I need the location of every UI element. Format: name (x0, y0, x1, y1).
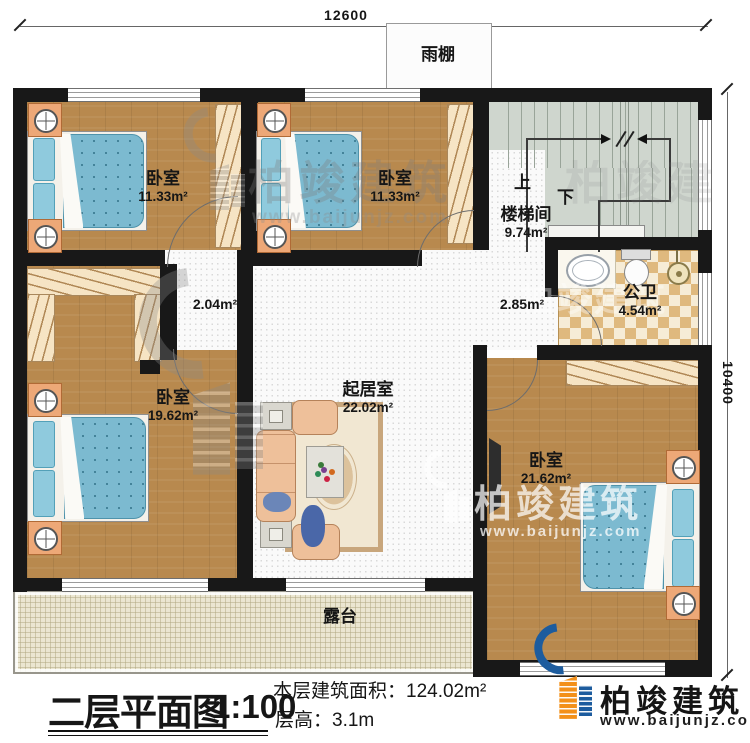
room-name: 公卫 (619, 284, 662, 301)
bed-pillow (33, 470, 55, 517)
nightstand (28, 383, 62, 417)
armchair-north (292, 400, 338, 435)
logo-building-icon (235, 402, 263, 469)
person-figure (301, 505, 325, 547)
label-stairwell: 楼梯间 9.74m² (501, 206, 552, 240)
end-table (260, 402, 292, 430)
lamp-icon (672, 456, 696, 480)
room-area: 19.62m² (148, 409, 198, 423)
right-dimension-label: 10400 (720, 359, 736, 407)
room-name: 露台 (323, 608, 357, 625)
window-bedroom-left (62, 578, 208, 592)
bed-pillow (33, 421, 55, 468)
bed-left (27, 414, 149, 522)
floor-plan-page: 12600 10400 雨棚 (0, 0, 750, 743)
watermark-url-white: www.baijunjz.com (480, 524, 641, 539)
logo-building-icon (193, 382, 231, 474)
terrace-floor (13, 590, 477, 674)
wall-outer-left (13, 88, 27, 592)
lamp-icon (34, 109, 58, 133)
label-hall-east-area: 2.85m² (500, 296, 544, 312)
window-bedroom-top-left (68, 88, 200, 102)
stair-down-label: 下 (557, 183, 574, 208)
stair-arrow-left-icon (637, 134, 647, 144)
floor-height-note: 层高：3.1m (275, 705, 374, 732)
lamp-icon (34, 389, 58, 413)
stair-up-label: 上 (514, 168, 531, 193)
top-dimension-tick-left (14, 19, 27, 32)
bed-pillow (33, 138, 55, 181)
nightstand (257, 103, 291, 137)
lamp-icon (672, 592, 696, 616)
lamp-icon (263, 109, 287, 133)
top-dimension-tick-right (700, 19, 713, 32)
toilet-bowl-icon (624, 259, 649, 286)
nightstand (28, 219, 62, 253)
window-living-room (286, 578, 425, 592)
room-name: 卧室 (521, 452, 571, 469)
room-area: 9.74m² (501, 226, 552, 240)
logo-building-icon (231, 174, 245, 208)
logo-building-icon (579, 685, 592, 716)
logo-building-icon (210, 164, 229, 210)
label-hall-west-area: 2.04m² (193, 296, 237, 312)
wardrobe-bedroom-right (566, 360, 700, 386)
room-name: 卧室 (148, 389, 198, 406)
top-dimension-line (20, 26, 708, 27)
room-area: 21.62m² (521, 472, 571, 486)
room-name: 卧室 (370, 170, 420, 187)
title-underline-2 (48, 735, 268, 736)
nightstand (666, 586, 700, 620)
nightstand (28, 521, 62, 555)
room-area: 22.02m² (343, 401, 394, 415)
label-bedroom-top-mid: 卧室 11.33m² (370, 170, 420, 204)
coffee-table (306, 446, 344, 498)
bed-pillow (672, 539, 694, 586)
canopy-label: 雨棚 (421, 46, 455, 63)
walkin-closet-top (27, 268, 162, 296)
wall-bedroom-right-north (537, 345, 698, 360)
shower-head-icon (667, 262, 690, 285)
nightstand (28, 103, 62, 137)
label-living-room: 起居室 22.02m² (343, 381, 394, 415)
room-name: 楼梯间 (501, 206, 552, 223)
label-bedroom-left: 卧室 19.62m² (148, 389, 198, 423)
plan-title: 二层平面图 (48, 682, 228, 736)
room-area: 11.33m² (138, 190, 188, 204)
label-bedroom-right: 卧室 21.62m² (521, 452, 571, 486)
logo-building-icon (444, 490, 458, 523)
floor-area-note: 本层建筑面积：124.02m² (273, 676, 486, 703)
watermark-text: 柏竣建筑 (248, 160, 452, 206)
flower-vase-icon (321, 467, 327, 473)
brand-url: www.baijunjz.com (600, 712, 750, 729)
wall-stair-west (473, 88, 489, 250)
nightstand (666, 450, 700, 484)
stair-down-path-h1 (647, 138, 671, 140)
logo-building-icon (559, 676, 577, 719)
room-name: 起居室 (343, 381, 394, 398)
label-terrace: 露台 (323, 608, 357, 625)
label-bedroom-top-left: 卧室 11.33m² (138, 170, 188, 204)
room-name: 卧室 (138, 170, 188, 187)
room-area: 11.33m² (370, 190, 420, 204)
bed-top-left (27, 131, 147, 231)
lamp-icon (263, 225, 287, 249)
lamp-icon (34, 527, 58, 551)
end-table (260, 520, 292, 548)
title-underline-1 (48, 730, 268, 732)
watermark-text-white: 柏竣建筑 (474, 486, 642, 524)
label-bathroom: 公卫 4.54m² (619, 284, 662, 318)
bed-pillow (672, 489, 694, 536)
watermark-text-bath: 柏竣建筑 (520, 283, 705, 317)
watermark-url: www.baijunjz.com (252, 208, 448, 227)
room-area: 4.54m² (619, 304, 662, 318)
lamp-icon (34, 225, 58, 249)
walkin-closet-left (27, 294, 55, 362)
top-dimension-label: 12600 (324, 7, 368, 23)
stair-up-path-horizontal (526, 138, 606, 140)
stair-arrow-right-icon (601, 134, 611, 144)
watermark-text-faint: 柏竣建筑 (565, 160, 711, 206)
logo-building-icon (459, 497, 469, 521)
person-figure (263, 492, 291, 512)
window-bedroom-top-mid (305, 88, 420, 102)
